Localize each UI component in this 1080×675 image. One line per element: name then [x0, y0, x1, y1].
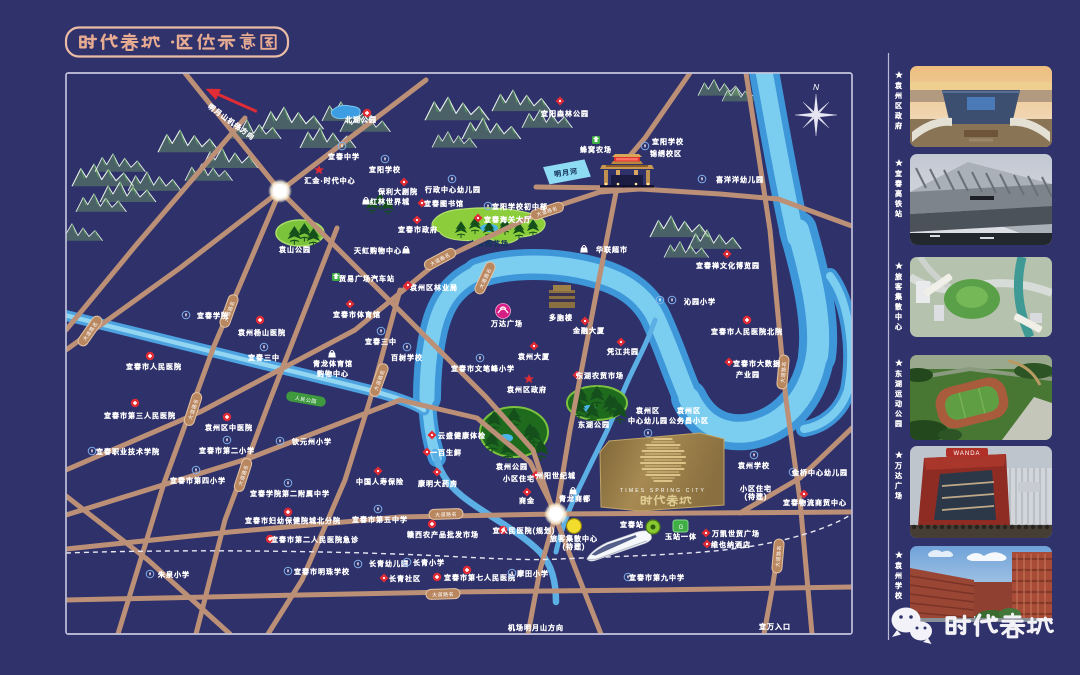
svg-text:宜春学院: 宜春学院	[197, 311, 229, 320]
svg-text:WANDA: WANDA	[953, 451, 980, 457]
svg-text:钦元州小学: 钦元州小学	[292, 437, 332, 446]
svg-text:东: 东	[895, 369, 903, 378]
svg-text:达: 达	[895, 471, 903, 480]
svg-text:朱泉小学: 朱泉小学	[158, 570, 190, 579]
svg-text:宜春市第七人民医院: 宜春市第七人民医院	[444, 573, 516, 582]
svg-text:G: G	[679, 525, 684, 531]
svg-text:心: 心	[895, 323, 903, 331]
svg-text:州: 州	[895, 92, 903, 100]
svg-text:购物中心: 购物中心	[317, 369, 349, 378]
svg-text:宜春三中: 宜春三中	[248, 353, 280, 362]
svg-text:摩田小学: 摩田小学	[517, 569, 549, 578]
svg-text:宜春市明珠学校: 宜春市明珠学校	[294, 567, 350, 576]
svg-text:宜春市妇幼保健院城北分院: 宜春市妇幼保健院城北分院	[245, 516, 341, 525]
svg-text:宜阳学校初中部: 宜阳学校初中部	[492, 202, 548, 211]
svg-text:宜春海关大厅: 宜春海关大厅	[484, 215, 532, 224]
svg-text:宜春市第九中学: 宜春市第九中学	[629, 573, 685, 582]
svg-text:小区住宅: 小区住宅	[740, 484, 772, 493]
svg-text:学: 学	[895, 581, 903, 590]
svg-text:蜂窝农场: 蜂窝农场	[580, 145, 612, 154]
svg-text:宜春市体育馆: 宜春市体育馆	[333, 310, 381, 319]
svg-text:袁州区中医院: 袁州区中医院	[205, 423, 253, 432]
svg-text:宜春站: 宜春站	[620, 520, 644, 529]
svg-text:州: 州	[895, 572, 903, 580]
svg-text:华联超市: 华联超市	[596, 245, 628, 254]
svg-text:政: 政	[895, 111, 903, 120]
svg-text:长青社区: 长青社区	[389, 574, 421, 583]
svg-text:州阳世纪城: 州阳世纪城	[536, 471, 576, 480]
svg-text:东湖公园: 东湖公园	[578, 420, 610, 429]
svg-text:云盛健康体检: 云盛健康体检	[438, 431, 486, 440]
svg-text:百树学校: 百树学校	[391, 353, 423, 362]
svg-text:宜春市人民医院北院: 宜春市人民医院北院	[711, 327, 783, 336]
svg-text:行政中心幼儿园: 行政中心幼儿园	[425, 185, 481, 194]
svg-text:铁: 铁	[895, 199, 903, 208]
svg-text:康明大药房: 康明大药房	[418, 479, 458, 488]
svg-text:赣西农产品批发市场: 赣西农产品批发市场	[407, 530, 479, 539]
svg-text:宜春学院第二附属中学: 宜春学院第二附属中学	[250, 489, 330, 498]
svg-text:校: 校	[895, 591, 903, 600]
svg-text:宜春市第二小学: 宜春市第二小学	[199, 446, 255, 455]
svg-text:贸易广场汽车站: 贸易广场汽车站	[339, 274, 395, 283]
svg-text:府: 府	[895, 121, 903, 130]
svg-text:大道路名: 大道路名	[435, 511, 457, 519]
svg-text:宜春物流商贸中心: 宜春物流商贸中心	[783, 498, 847, 507]
svg-text:宜春市第四小学: 宜春市第四小学	[170, 476, 226, 485]
svg-text:万: 万	[895, 462, 903, 470]
svg-text:汇金·时代中心: 汇金·时代中心	[304, 176, 355, 185]
svg-text:东湖农贸市场: 东湖农贸市场	[576, 371, 624, 380]
svg-text:沁园小学: 沁园小学	[684, 297, 716, 306]
svg-text:N: N	[813, 82, 820, 92]
svg-text:袁州大厦: 袁州大厦	[518, 352, 550, 361]
svg-text:运: 运	[895, 390, 903, 398]
svg-text:公务昌小区: 公务昌小区	[669, 416, 709, 425]
svg-text:园: 园	[895, 420, 903, 428]
svg-text:袁州公园: 袁州公园	[496, 462, 528, 471]
svg-text:春: 春	[895, 179, 903, 188]
svg-text:宜春图书馆: 宜春图书馆	[424, 199, 464, 208]
svg-text:动: 动	[895, 399, 903, 408]
svg-text:宜春市第五中学: 宜春市第五中学	[352, 515, 408, 524]
svg-text:商金: 商金	[519, 496, 535, 505]
svg-text:广: 广	[895, 481, 903, 490]
svg-text:北湖公园: 北湖公园	[345, 115, 377, 124]
svg-text:宜万入口: 宜万入口	[759, 622, 791, 631]
svg-text:宜春市第三人民医院: 宜春市第三人民医院	[104, 411, 176, 420]
svg-text:宜春市人民医院: 宜春市人民医院	[126, 362, 182, 371]
svg-text:保利大剧院: 保利大剧院	[378, 187, 418, 196]
svg-text:锦绣校区: 锦绣校区	[650, 149, 682, 158]
svg-text:机场明月山方向: 机场明月山方向	[508, 623, 564, 632]
svg-text:长青小学: 长青小学	[413, 558, 445, 567]
svg-text:(待建): (待建)	[745, 492, 768, 501]
svg-text:喜洋洋幼儿园: 喜洋洋幼儿园	[716, 175, 764, 184]
svg-text:红林世界城: 红林世界城	[370, 197, 410, 206]
svg-text:袁州区: 袁州区	[677, 406, 701, 415]
svg-text:高: 高	[895, 189, 903, 198]
svg-text:中: 中	[895, 312, 903, 321]
svg-text:旅: 旅	[895, 272, 903, 281]
svg-text:宜春市文笔峰小学: 宜春市文笔峰小学	[451, 364, 515, 373]
svg-text:宜春市第二人民医院急诊: 宜春市第二人民医院急诊	[271, 535, 359, 544]
svg-text:宜阳学校: 宜阳学校	[652, 137, 684, 146]
svg-text:宜春禅文化博览园: 宜春禅文化博览园	[696, 261, 760, 270]
svg-text:散: 散	[895, 302, 903, 311]
svg-text:站: 站	[895, 209, 903, 218]
svg-text:TIMES SPRING CITY: TIMES SPRING CITY	[620, 488, 706, 494]
svg-text:袁山公园: 袁山公园	[279, 245, 311, 254]
svg-text:袁州区林业局: 袁州区林业局	[410, 283, 458, 292]
svg-text:维也纳酒店: 维也纳酒店	[711, 540, 751, 549]
svg-text:宜: 宜	[895, 169, 903, 178]
svg-text:万凯世贸广场: 万凯世贸广场	[712, 529, 760, 538]
svg-text:袁州区政府: 袁州区政府	[507, 385, 547, 394]
svg-text:宜春市大数据: 宜春市大数据	[733, 359, 781, 368]
svg-text:袁州区: 袁州区	[636, 406, 660, 415]
svg-text:宜人民医院(规划): 宜人民医院(规划)	[493, 526, 556, 535]
svg-text:小区住宅: 小区住宅	[503, 474, 535, 483]
svg-text:金桥中心幼儿园: 金桥中心幼儿园	[792, 468, 848, 477]
svg-text:宜阳学校: 宜阳学校	[369, 165, 401, 174]
svg-text:公: 公	[895, 410, 903, 418]
svg-text:宜阳森林公园: 宜阳森林公园	[541, 109, 589, 118]
svg-text:产业园: 产业园	[736, 370, 760, 379]
svg-text:青龙体育馆: 青龙体育馆	[313, 359, 353, 368]
svg-text:旅客集散中心: 旅客集散中心	[550, 534, 598, 543]
svg-text:青龙商都: 青龙商都	[559, 494, 591, 503]
svg-text:天虹购物中心: 天虹购物中心	[354, 246, 402, 255]
svg-text:区: 区	[895, 102, 903, 110]
svg-text:宜春三中: 宜春三中	[365, 337, 397, 346]
svg-text:湖: 湖	[895, 379, 903, 388]
svg-text:多胞楼: 多胞楼	[549, 313, 573, 322]
svg-text:袁州学校: 袁州学校	[738, 461, 770, 470]
svg-text:集: 集	[895, 292, 903, 301]
svg-text:袁州杨山医院: 袁州杨山医院	[238, 328, 286, 337]
svg-text:金融大厦: 金融大厦	[573, 326, 605, 335]
svg-text:中国人寿保险: 中国人寿保险	[356, 477, 404, 486]
svg-text:宜春中学: 宜春中学	[328, 152, 360, 161]
svg-text:宜春市政府: 宜春市政府	[398, 225, 438, 234]
svg-text:凭江共园: 凭江共园	[607, 347, 639, 356]
svg-text:袁: 袁	[895, 81, 903, 90]
svg-text:一百生鲜: 一百生鲜	[430, 448, 462, 457]
svg-text:(待建): (待建)	[563, 542, 586, 551]
svg-text:宜春职业技术学院: 宜春职业技术学院	[96, 447, 160, 456]
svg-text:万达广场: 万达广场	[491, 319, 523, 328]
svg-text:中心幼儿园: 中心幼儿园	[628, 416, 668, 425]
svg-text:场: 场	[895, 491, 903, 500]
svg-text:客: 客	[895, 282, 903, 291]
svg-text:袁: 袁	[895, 561, 903, 570]
svg-text:玉站一体: 玉站一体	[665, 532, 697, 541]
svg-text:大道路名: 大道路名	[432, 591, 454, 599]
